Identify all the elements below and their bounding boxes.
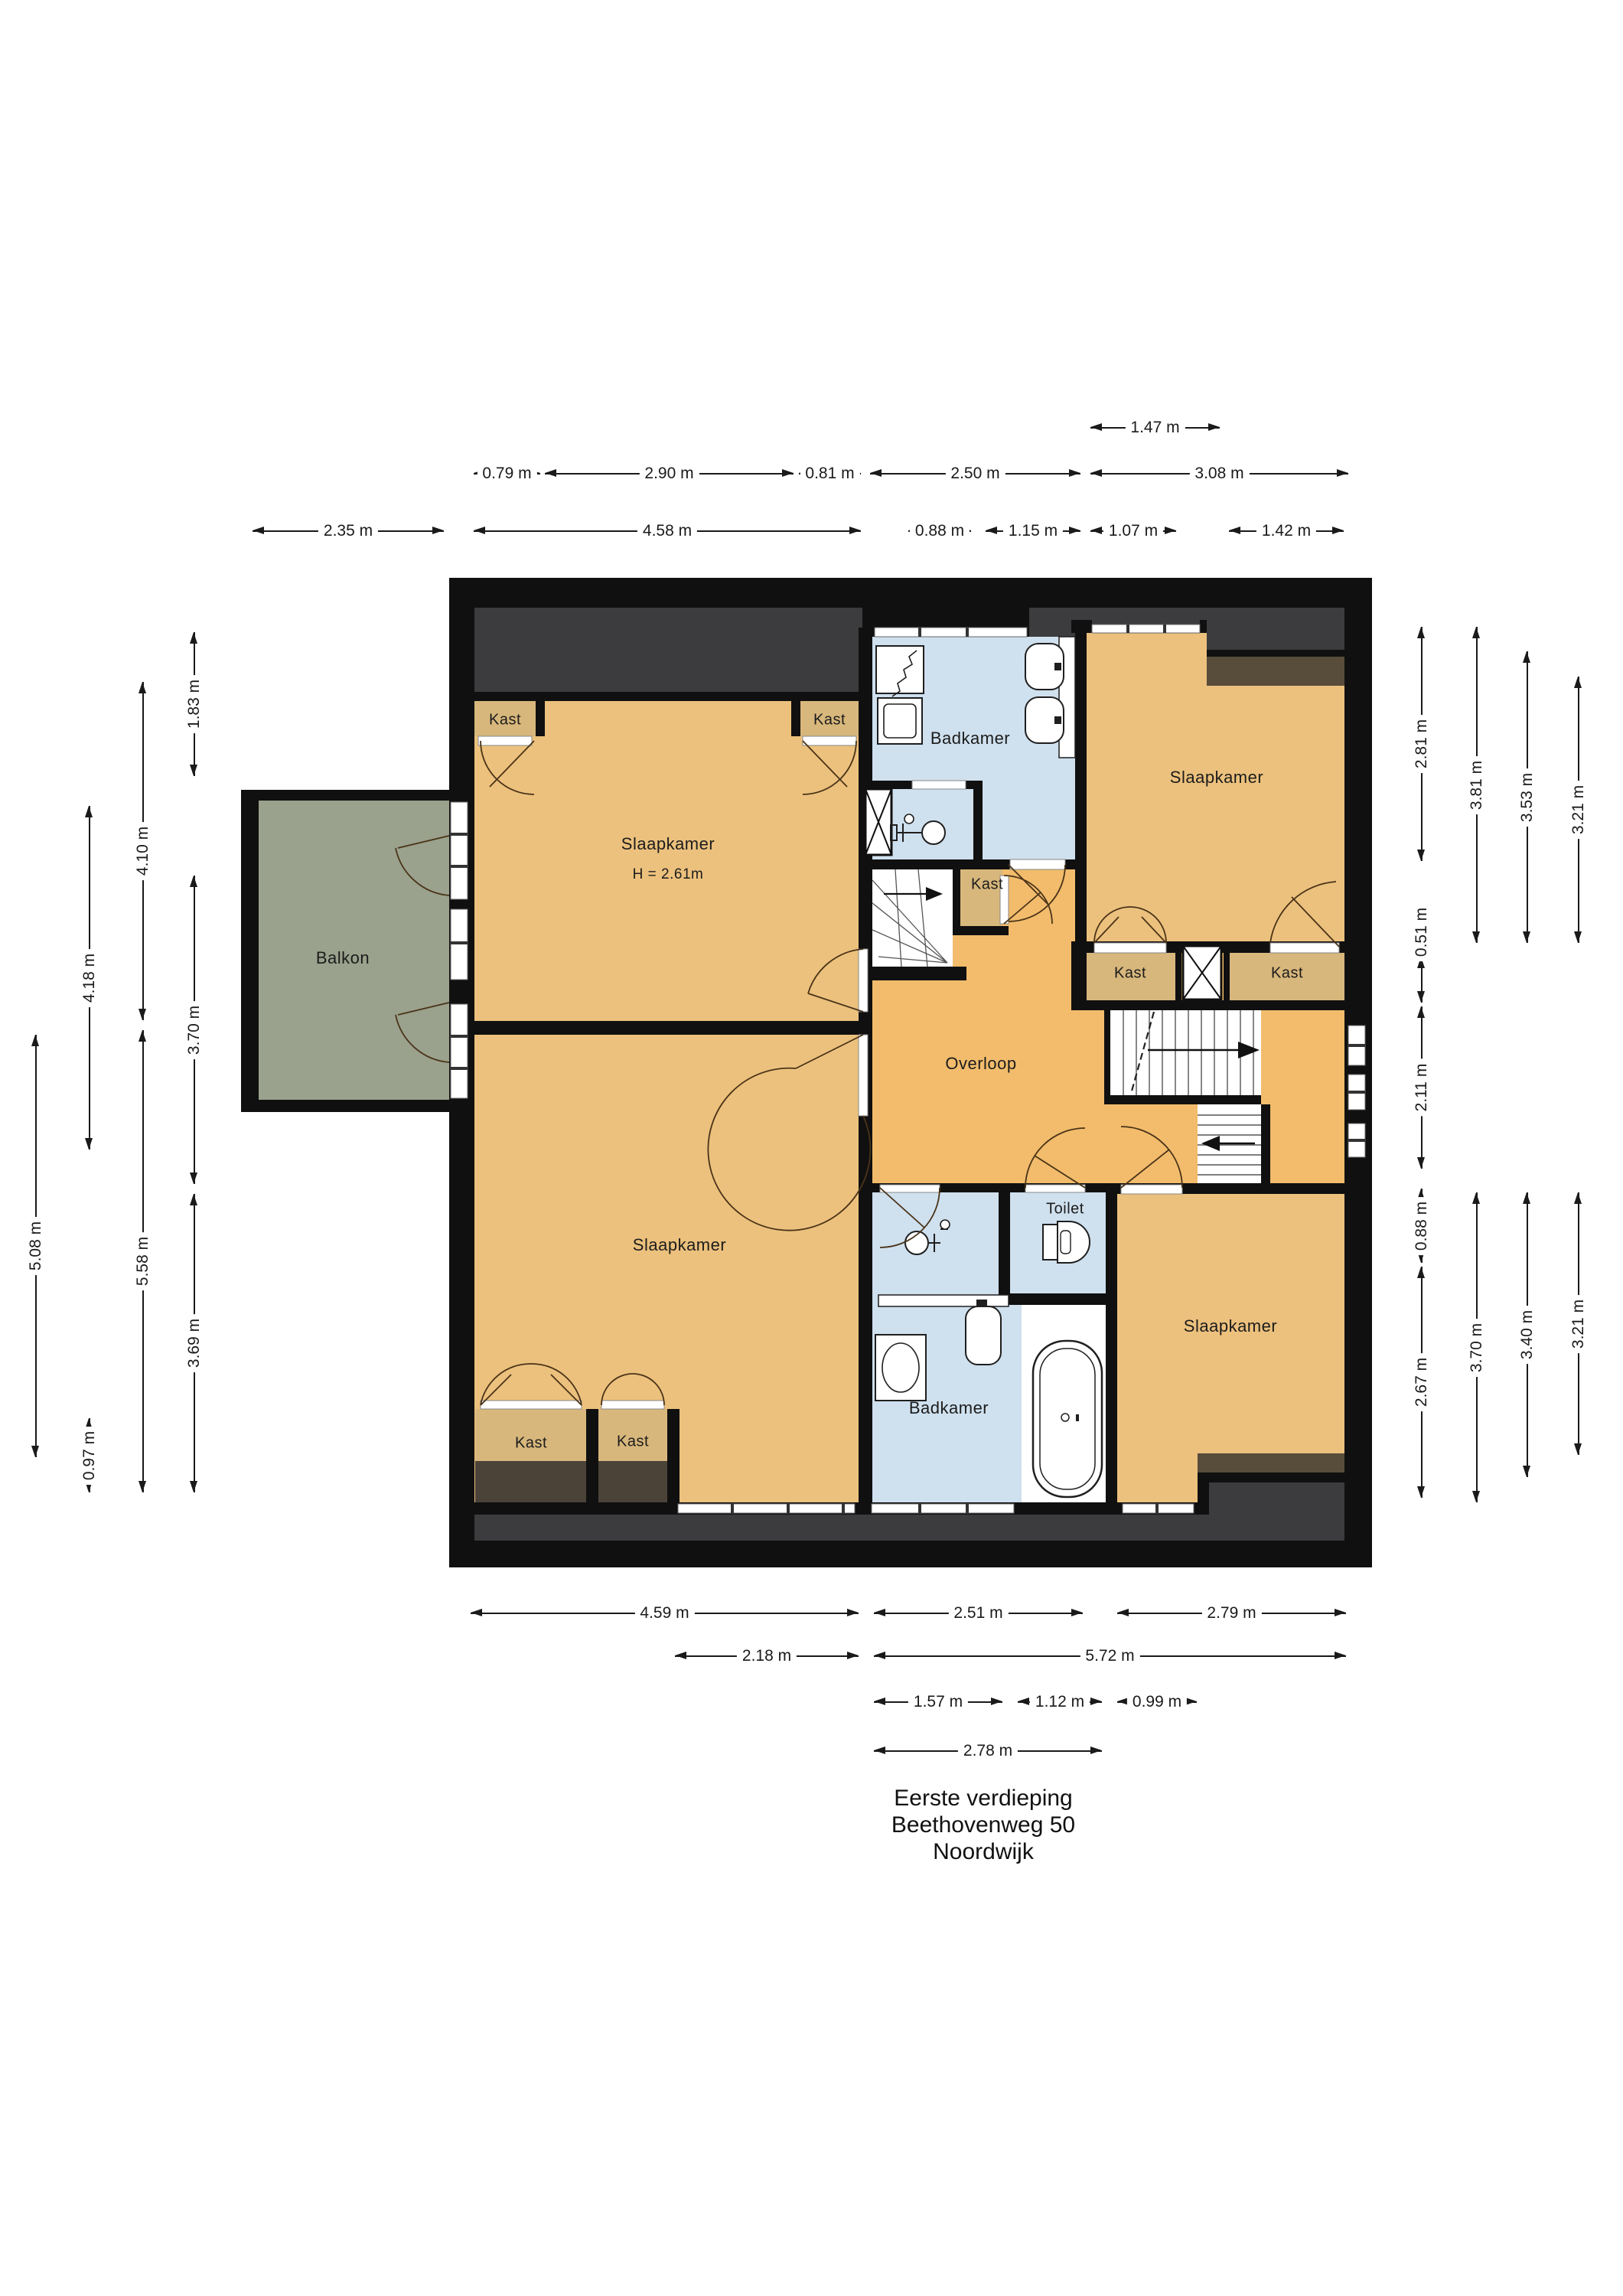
shower <box>876 646 924 693</box>
arrowhead-icon <box>1069 469 1080 477</box>
arrowhead-icon <box>139 1009 146 1020</box>
dimension-value: 0.79 m <box>477 465 536 483</box>
arrowhead-icon <box>1417 1006 1425 1018</box>
dimension-value: 4.10 m <box>134 822 152 880</box>
arrowhead-icon <box>139 1030 146 1042</box>
dimension-bottom: 1.12 m <box>1018 1701 1102 1703</box>
arrowhead-icon <box>139 1481 146 1492</box>
arrowhead-icon <box>1574 677 1582 688</box>
dimension-top: 0.81 m <box>799 473 861 475</box>
dimension-value: 2.50 m <box>945 465 1005 483</box>
arrowhead-icon <box>1472 1491 1480 1502</box>
dimension-left: 5.08 m <box>35 1035 37 1457</box>
dimension-bottom: 2.79 m <box>1117 1613 1346 1614</box>
dimension-right: 0.88 m <box>1421 1189 1423 1263</box>
arrowhead-icon <box>474 527 485 534</box>
room-label-kast: Kast <box>617 1433 649 1451</box>
dimension-value: 2.81 m <box>1413 715 1431 773</box>
dimension-left: 1.83 m <box>194 632 195 776</box>
dimension-value: 3.70 m <box>185 1000 204 1058</box>
arrowhead-icon <box>847 1609 859 1616</box>
arrowhead-icon <box>190 765 197 776</box>
arrowhead-icon <box>190 632 197 644</box>
arrowhead-icon <box>1185 1698 1197 1705</box>
dimension-value: 2.11 m <box>1413 1059 1431 1117</box>
dimension-right: 2.11 m <box>1421 1006 1423 1169</box>
arrowhead-icon <box>1335 1652 1346 1659</box>
dimension-value: 3.21 m <box>1569 781 1588 839</box>
room-label-kast: Kast <box>1271 965 1303 983</box>
dimension-value: 5.72 m <box>1080 1647 1139 1665</box>
arrowhead-icon <box>139 682 146 693</box>
dimension-bottom: 2.18 m <box>675 1655 859 1657</box>
dimension-value: 0.99 m <box>1127 1693 1187 1711</box>
dimension-right: 3.21 m <box>1578 677 1579 943</box>
roof-slope-strip <box>1207 657 1344 686</box>
arrowhead-icon <box>874 1746 885 1754</box>
arrowhead-icon <box>85 1138 93 1150</box>
dimension-value: 3.08 m <box>1189 465 1249 483</box>
arrowhead-icon <box>432 527 444 534</box>
dimension-left: 3.70 m <box>194 876 195 1184</box>
dimension-value: 3.21 m <box>1569 1294 1588 1352</box>
arrowhead-icon <box>1337 469 1348 477</box>
arrowhead-icon <box>1574 931 1582 943</box>
arrowhead-icon <box>190 1172 197 1184</box>
title-city: Noordwijk <box>891 1838 1075 1865</box>
arrowhead-icon <box>1117 1609 1129 1616</box>
dimension-value: 2.18 m <box>737 1647 797 1665</box>
room-label-badkamer_top: Badkamer <box>930 729 1010 748</box>
room-label-balkon: Balkon <box>316 948 370 968</box>
arrowhead-icon <box>1090 469 1102 477</box>
dimension-value: 0.81 m <box>800 465 859 483</box>
bedroom-topleft-floor <box>474 701 859 1021</box>
dimension-value: 1.47 m <box>1125 419 1185 437</box>
arrowhead-icon <box>1574 1443 1582 1455</box>
arrowhead-icon <box>1417 1267 1425 1278</box>
dimension-value: 3.70 m <box>1468 1318 1486 1376</box>
dimension-right: 3.21 m <box>1578 1192 1579 1455</box>
dimension-value: 1.12 m <box>1030 1693 1090 1711</box>
dimension-value: 3.40 m <box>1518 1306 1537 1364</box>
room-label-kast: Kast <box>515 1435 547 1453</box>
room-label-kast: Kast <box>489 712 521 729</box>
dimension-value: 1.42 m <box>1256 522 1316 540</box>
arrowhead-icon <box>1523 651 1530 663</box>
floorplan-drawing <box>0 0 1623 2296</box>
arrowhead-icon <box>874 1609 885 1616</box>
room-label-slaapkamer_bl: Slaapkamer <box>633 1235 726 1255</box>
mixer-tap <box>922 821 945 844</box>
arrowhead-icon <box>190 876 197 887</box>
dimension-right: 2.67 m <box>1421 1267 1423 1498</box>
dimension-value: 0.97 m <box>80 1426 99 1484</box>
dimension-value: 4.18 m <box>80 948 99 1006</box>
arrowhead-icon <box>1208 423 1220 431</box>
winder-stairs <box>872 869 953 967</box>
arrowhead-icon <box>1417 991 1425 1003</box>
stairs-down <box>1198 1104 1261 1183</box>
dimension-value: 0.88 m <box>1413 1196 1431 1254</box>
arrowhead-icon <box>1523 931 1530 943</box>
dimension-value: 0.51 m <box>1413 903 1431 961</box>
dimension-value: 1.07 m <box>1103 522 1163 540</box>
room-label-overloop: Overloop <box>945 1054 1016 1074</box>
room-label-badkamer_bottom: Badkamer <box>909 1398 989 1418</box>
arrowhead-icon <box>1332 527 1344 534</box>
dimension-value: 2.67 m <box>1413 1353 1431 1411</box>
dimension-left: 3.69 m <box>194 1194 195 1492</box>
dimension-top: 3.08 m <box>1090 473 1348 475</box>
dimension-right: 3.53 m <box>1527 651 1528 943</box>
toilet-bowl <box>1043 1225 1058 1260</box>
dimension-top: 2.50 m <box>870 473 1080 475</box>
dimension-left: 0.97 m <box>89 1418 90 1492</box>
dimension-value: 2.90 m <box>639 465 699 483</box>
dimension-value: 3.81 m <box>1468 755 1486 814</box>
dimension-right: 0.51 m <box>1421 957 1423 1003</box>
arrowhead-icon <box>1472 931 1480 943</box>
arrowhead-icon <box>190 1481 197 1492</box>
drawing-title: Eerste verdieping Beethovenweg 50 Noordw… <box>891 1785 1075 1865</box>
arrowhead-icon <box>1472 1192 1480 1204</box>
arrowhead-icon <box>1090 527 1102 534</box>
sink <box>966 1306 1001 1365</box>
arrowhead-icon <box>1069 527 1080 534</box>
room-label-slaapkamer_tl_height: H = 2.61m <box>633 866 704 883</box>
arrowhead-icon <box>1417 850 1425 861</box>
dimension-top: 0.79 m <box>474 473 540 475</box>
dimension-top: 1.47 m <box>1090 427 1220 429</box>
dimension-top: 4.58 m <box>474 530 861 532</box>
room-label-slaapkamer_tr: Slaapkamer <box>1170 768 1263 788</box>
arrowhead-icon <box>1417 1157 1425 1169</box>
dimension-value: 2.79 m <box>1201 1604 1261 1623</box>
arrowhead-icon <box>870 469 882 477</box>
arrowhead-icon <box>1229 527 1240 534</box>
arrowhead-icon <box>1523 1192 1530 1204</box>
arrowhead-icon <box>31 1446 39 1457</box>
arrowhead-icon <box>1472 627 1480 638</box>
arrowhead-icon <box>190 1194 197 1205</box>
dimension-bottom: 4.59 m <box>471 1613 859 1614</box>
arrowhead-icon <box>253 527 264 534</box>
arrowhead-icon <box>1071 1609 1083 1616</box>
dimension-bottom: 0.99 m <box>1117 1701 1197 1703</box>
arrowhead-icon <box>1090 423 1102 431</box>
dimension-top: 1.42 m <box>1229 530 1344 532</box>
dimension-top: 2.35 m <box>253 530 444 532</box>
arrowhead-icon <box>1090 1698 1102 1705</box>
floorplan-page: BalkonSlaapkamerH = 2.61mKastKastBadkame… <box>0 0 1623 2296</box>
room-label-slaapkamer_tl: Slaapkamer <box>621 834 715 854</box>
counter <box>878 1295 1009 1306</box>
dimension-top: 0.88 m <box>908 530 971 532</box>
dimension-top: 1.15 m <box>986 530 1080 532</box>
dimension-bottom: 1.57 m <box>874 1701 1002 1703</box>
dimension-value: 4.59 m <box>634 1604 694 1623</box>
arrowhead-icon <box>874 1698 885 1705</box>
dimension-value: 0.88 m <box>910 522 970 540</box>
arrowhead-icon <box>1335 1609 1346 1616</box>
arrowhead-icon <box>31 1035 39 1046</box>
arrowhead-icon <box>1090 1746 1102 1754</box>
dimension-right: 2.81 m <box>1421 627 1423 861</box>
arrowhead-icon <box>986 527 997 534</box>
dimension-value: 3.53 m <box>1518 768 1537 826</box>
dimension-left: 4.18 m <box>89 806 90 1150</box>
stairs-main <box>1110 1010 1261 1095</box>
dimension-right: 3.81 m <box>1476 627 1478 943</box>
arrowhead-icon <box>1523 1466 1530 1477</box>
dimension-bottom: 2.51 m <box>874 1613 1083 1614</box>
arrowhead-icon <box>847 1652 859 1659</box>
dimension-bottom: 5.72 m <box>874 1655 1346 1657</box>
arrowhead-icon <box>1165 527 1176 534</box>
dimension-value: 2.51 m <box>948 1604 1008 1623</box>
arrowhead-icon <box>1018 1698 1029 1705</box>
dimension-left: 4.10 m <box>142 682 144 1020</box>
dimension-left: 5.58 m <box>142 1030 144 1492</box>
dimension-value: 1.83 m <box>185 675 204 733</box>
dimension-right: 3.40 m <box>1527 1192 1528 1477</box>
arrowhead-icon <box>1574 1192 1582 1204</box>
title-street: Beethovenweg 50 <box>891 1812 1075 1838</box>
dimension-value: 1.57 m <box>908 1693 968 1711</box>
arrowhead-icon <box>85 806 93 817</box>
room-label-slaapkamer_br: Slaapkamer <box>1184 1316 1277 1336</box>
dimension-right: 3.70 m <box>1476 1192 1478 1502</box>
room-label-kast: Kast <box>813 712 846 729</box>
arrowhead-icon <box>471 1609 482 1616</box>
room-label-kast: Kast <box>1114 965 1146 983</box>
title-floor: Eerste verdieping <box>891 1785 1075 1812</box>
dimension-value: 5.08 m <box>27 1217 45 1275</box>
arrowhead-icon <box>849 527 861 534</box>
room-label-kast: Kast <box>971 876 1003 894</box>
arrowhead-icon <box>874 1652 885 1659</box>
arrowhead-icon <box>1417 1486 1425 1498</box>
arrowhead-icon <box>675 1652 686 1659</box>
dimension-value: 4.58 m <box>637 522 697 540</box>
dimension-value: 2.35 m <box>318 522 378 540</box>
arrowhead-icon <box>1417 627 1425 638</box>
dimension-value: 2.78 m <box>958 1742 1018 1760</box>
dimension-value: 5.58 m <box>134 1232 152 1290</box>
room-label-toilet: Toilet <box>1046 1201 1084 1218</box>
arrowhead-icon <box>991 1698 1002 1705</box>
arrowhead-icon <box>545 469 556 477</box>
dimension-bottom: 2.78 m <box>874 1750 1102 1752</box>
dimension-top: 2.90 m <box>545 473 794 475</box>
roof-slope-strip <box>1198 1453 1344 1473</box>
dimension-value: 3.69 m <box>185 1314 204 1372</box>
arrowhead-icon <box>782 469 794 477</box>
dimension-value: 1.15 m <box>1003 522 1063 540</box>
washing-machine <box>875 1335 926 1401</box>
dimension-top: 1.07 m <box>1090 530 1176 532</box>
